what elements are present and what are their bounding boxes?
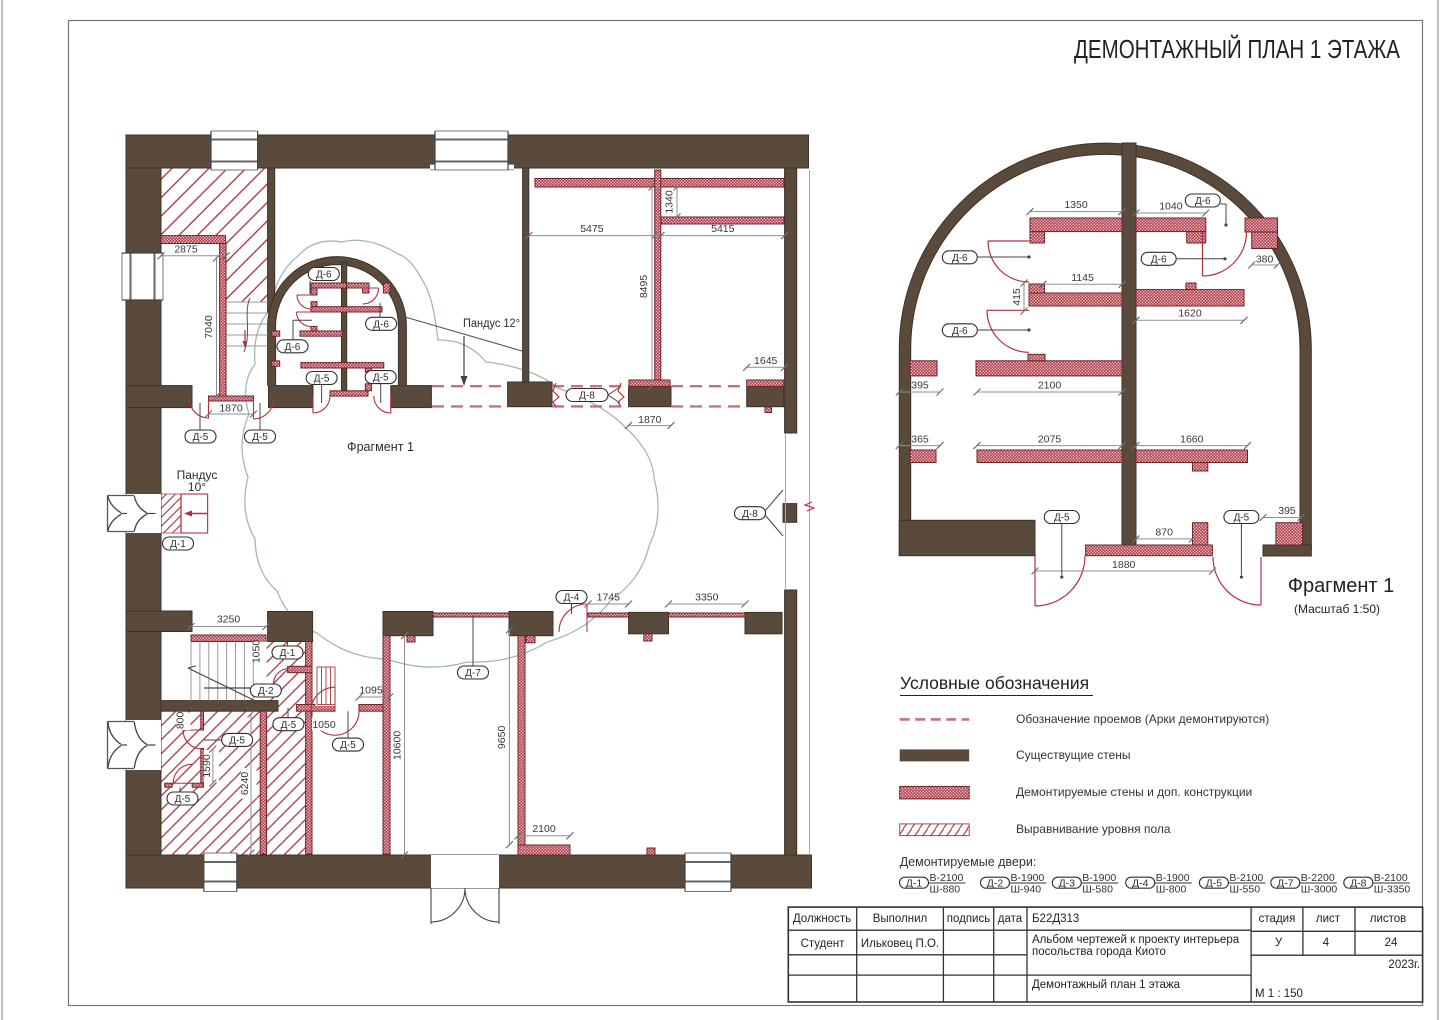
svg-text:Д-5: Д-5 — [1234, 513, 1250, 524]
svg-text:6240: 6240 — [239, 772, 251, 796]
svg-text:дата: дата — [998, 913, 1023, 925]
svg-text:Альбом чертежей к проекту инте: Альбом чертежей к проекту интерьера — [1032, 934, 1240, 946]
svg-text:посольства города Киото: посольства города Киото — [1032, 946, 1166, 958]
svg-text:365: 365 — [911, 433, 929, 445]
svg-text:Пандус 12°: Пандус 12° — [463, 318, 520, 330]
svg-text:Д-5: Д-5 — [1206, 877, 1223, 889]
svg-text:Д-8: Д-8 — [1350, 877, 1367, 889]
svg-text:Д-6: Д-6 — [285, 342, 301, 353]
svg-text:Д-1: Д-1 — [280, 648, 296, 659]
svg-text:Д-4: Д-4 — [564, 593, 580, 604]
svg-text:Д-6: Д-6 — [952, 253, 968, 264]
svg-text:Д-4: Д-4 — [1132, 877, 1149, 889]
svg-text:3250: 3250 — [217, 614, 241, 626]
svg-text:5475: 5475 — [580, 223, 604, 235]
svg-text:Д-6: Д-6 — [373, 319, 389, 330]
svg-text:У: У — [1275, 937, 1283, 949]
svg-text:Д-6: Д-6 — [1151, 254, 1167, 265]
svg-text:Ш-3350: Ш-3350 — [1374, 884, 1411, 896]
svg-text:Фрагмент 1: Фрагмент 1 — [1288, 575, 1395, 597]
svg-text:3350: 3350 — [695, 592, 719, 604]
svg-text:Д-5: Д-5 — [314, 374, 330, 385]
svg-text:1145: 1145 — [1071, 272, 1094, 284]
svg-text:380: 380 — [1256, 254, 1274, 266]
svg-text:2075: 2075 — [1038, 433, 1062, 445]
svg-text:24: 24 — [1385, 937, 1398, 949]
svg-text:Ильковец П.О.: Ильковец П.О. — [861, 938, 939, 950]
svg-text:1095: 1095 — [359, 685, 383, 697]
svg-text:Ш-800: Ш-800 — [1156, 884, 1187, 896]
svg-text:Д-1: Д-1 — [170, 539, 186, 550]
svg-text:Демонтируемые стены и доп. кон: Демонтируемые стены и доп. конструкции — [1016, 785, 1252, 799]
svg-text:Д-5: Д-5 — [373, 373, 389, 384]
svg-text:Существущие стены: Существущие стены — [1016, 748, 1131, 762]
svg-text:Д-2: Д-2 — [258, 686, 274, 697]
svg-text:1870: 1870 — [219, 403, 243, 415]
svg-text:2023г.: 2023г. — [1388, 959, 1420, 971]
svg-text:800: 800 — [175, 711, 187, 729]
svg-text:1050: 1050 — [251, 640, 263, 664]
svg-text:2875: 2875 — [174, 243, 198, 255]
svg-text:1870: 1870 — [638, 414, 662, 426]
svg-text:Д-5: Д-5 — [193, 432, 209, 443]
svg-text:8495: 8495 — [638, 275, 650, 299]
svg-text:В-2200: В-2200 — [1301, 872, 1335, 884]
svg-text:1880: 1880 — [1112, 559, 1136, 571]
svg-text:Д-5: Д-5 — [252, 432, 268, 443]
svg-text:В-1900: В-1900 — [1156, 872, 1190, 884]
svg-text:1645: 1645 — [754, 355, 778, 367]
svg-text:1340: 1340 — [664, 190, 676, 214]
svg-text:Обозначение проемов (Арки демо: Обозначение проемов (Арки демонтируются) — [1016, 712, 1269, 726]
svg-text:2100: 2100 — [532, 823, 556, 835]
svg-text:Д-6: Д-6 — [1195, 196, 1211, 207]
svg-text:10°: 10° — [188, 480, 206, 494]
svg-text:1590: 1590 — [201, 754, 213, 778]
svg-text:Должность: Должность — [793, 913, 851, 925]
svg-text:Демонтируемые двери:: Демонтируемые двери: — [900, 855, 1037, 869]
svg-text:395: 395 — [1278, 505, 1296, 517]
svg-text:870: 870 — [1155, 526, 1173, 538]
svg-text:395: 395 — [911, 380, 929, 392]
svg-text:Д-5: Д-5 — [340, 740, 356, 751]
svg-text:ДЕМОНТАЖНЫЙ ПЛАН 1 ЭТАЖА: ДЕМОНТАЖНЫЙ ПЛАН 1 ЭТАЖА — [1074, 34, 1401, 64]
svg-text:415: 415 — [1011, 288, 1023, 306]
svg-text:Ш-580: Ш-580 — [1082, 884, 1113, 896]
svg-text:Д-5: Д-5 — [1054, 513, 1070, 524]
svg-text:В-1900: В-1900 — [1011, 872, 1045, 884]
svg-text:В-1900: В-1900 — [1082, 872, 1116, 884]
svg-text:лист: лист — [1316, 913, 1341, 925]
svg-text:1660: 1660 — [1180, 433, 1204, 445]
svg-text:4: 4 — [1323, 937, 1330, 949]
svg-text:подпись: подпись — [947, 913, 990, 925]
svg-text:Б22Д313: Б22Д313 — [1032, 913, 1079, 925]
svg-text:1350: 1350 — [1064, 199, 1088, 211]
svg-text:(Масштаб 1:50): (Масштаб 1:50) — [1294, 602, 1380, 616]
svg-text:Д-5: Д-5 — [229, 736, 245, 747]
svg-text:Д-3: Д-3 — [1059, 877, 1076, 889]
svg-text:1745: 1745 — [597, 592, 621, 604]
svg-text:Ш-3000: Ш-3000 — [1301, 884, 1338, 896]
svg-text:9650: 9650 — [496, 726, 508, 750]
svg-text:Д-6: Д-6 — [316, 270, 332, 281]
svg-text:Д-7: Д-7 — [1277, 877, 1294, 889]
svg-text:Фрагмент 1: Фрагмент 1 — [347, 440, 414, 454]
svg-text:Д-6: Д-6 — [952, 326, 968, 337]
svg-text:7040: 7040 — [203, 315, 215, 339]
svg-text:стадия: стадия — [1259, 913, 1296, 925]
svg-text:Д-5: Д-5 — [281, 720, 297, 731]
svg-text:10600: 10600 — [392, 731, 404, 760]
svg-text:Д-1: Д-1 — [906, 877, 923, 889]
svg-text:Условные обозначения: Условные обозначения — [900, 673, 1089, 693]
svg-text:Д-8: Д-8 — [579, 391, 595, 402]
svg-text:М 1 : 150: М 1 : 150 — [1255, 988, 1303, 1000]
svg-text:Ш-550: Ш-550 — [1229, 884, 1260, 896]
svg-text:Выравнивание уровня пола: Выравнивание уровня пола — [1016, 822, 1171, 836]
svg-text:В-2100: В-2100 — [1374, 872, 1408, 884]
svg-text:Ш-880: Ш-880 — [930, 884, 961, 896]
svg-text:листов: листов — [1370, 913, 1407, 925]
svg-text:Демонтажный план 1 этажа: Демонтажный план 1 этажа — [1032, 979, 1181, 991]
svg-text:Выполнил: Выполнил — [873, 913, 928, 925]
svg-text:1050: 1050 — [312, 719, 336, 731]
svg-text:В-2100: В-2100 — [1229, 872, 1263, 884]
svg-text:Д-5: Д-5 — [175, 794, 191, 805]
svg-text:В-2100: В-2100 — [930, 872, 964, 884]
svg-text:Д-7: Д-7 — [465, 668, 481, 679]
svg-text:2100: 2100 — [1038, 380, 1062, 392]
svg-text:Ш-940: Ш-940 — [1011, 884, 1042, 896]
svg-text:Д-2: Д-2 — [987, 877, 1004, 889]
svg-text:Студент: Студент — [801, 938, 846, 950]
svg-text:Д-8: Д-8 — [742, 509, 758, 520]
svg-text:1620: 1620 — [1178, 308, 1202, 320]
svg-text:1040: 1040 — [1159, 200, 1183, 212]
svg-text:5415: 5415 — [711, 223, 735, 235]
